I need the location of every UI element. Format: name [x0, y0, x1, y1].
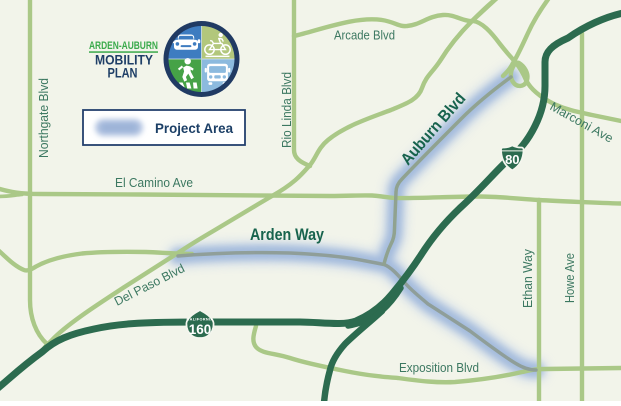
svg-text:ARDEN-AUBURN: ARDEN-AUBURN [89, 40, 158, 52]
svg-text:Exposition Blvd: Exposition Blvd [399, 361, 479, 375]
svg-text:Arcade Blvd: Arcade Blvd [334, 29, 395, 43]
svg-text:Arden Way: Arden Way [250, 226, 325, 244]
svg-text:Howe Ave: Howe Ave [563, 253, 577, 303]
svg-text:El Camino Ave: El Camino Ave [115, 176, 193, 190]
svg-text:PLAN: PLAN [108, 66, 138, 81]
svg-text:Northgate Blvd: Northgate Blvd [37, 78, 51, 158]
svg-text:160: 160 [189, 322, 212, 337]
svg-text:Rio Linda Blvd: Rio Linda Blvd [280, 72, 294, 148]
svg-text:Ethan Way: Ethan Way [521, 248, 535, 308]
svg-text:Project Area: Project Area [155, 120, 233, 136]
svg-text:80: 80 [505, 152, 519, 167]
